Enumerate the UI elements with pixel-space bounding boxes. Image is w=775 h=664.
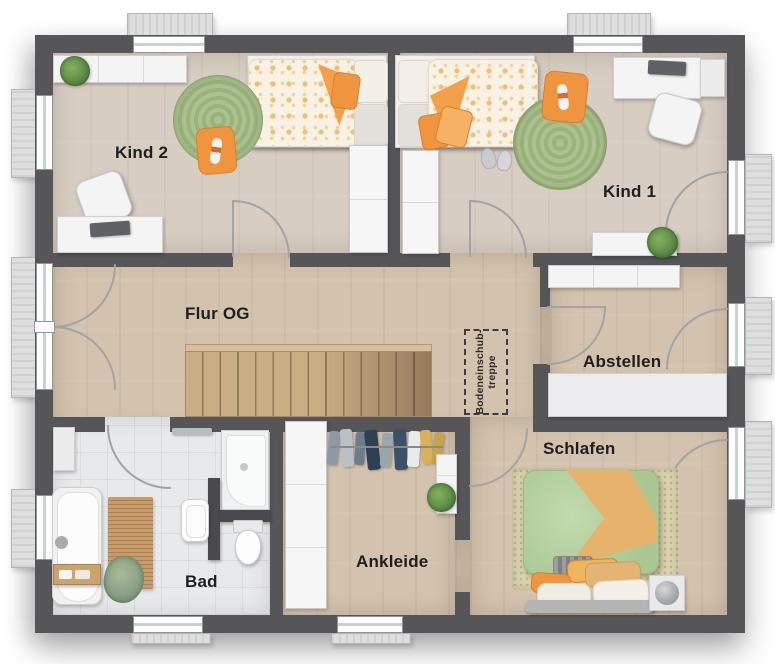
attic-stairs-line1: Bodeneinschub-	[474, 329, 486, 415]
kind2-plant	[60, 56, 90, 86]
window-abstellen-right	[728, 303, 745, 367]
towel-rail	[172, 428, 212, 435]
kind1-closet	[402, 150, 439, 254]
clothing-item	[364, 429, 381, 470]
ankleide-plant	[427, 483, 456, 512]
window-schlafen-right	[728, 427, 745, 500]
shower-tray	[226, 435, 266, 507]
sink	[181, 499, 209, 542]
toilet-bowl	[235, 530, 261, 565]
window-kind2-left	[36, 95, 53, 170]
kind1-monitor	[648, 60, 687, 76]
wall-ankleide-schlafen-bottom	[455, 592, 470, 615]
window-flur-mullion	[34, 321, 55, 333]
window-sill	[745, 421, 772, 508]
clothing-item	[393, 429, 408, 471]
kind2-bed	[247, 55, 387, 148]
towel-roll	[59, 570, 72, 579]
window-ankleide-bottom	[337, 616, 403, 633]
tub-faucet	[55, 536, 68, 549]
bath-caddy	[53, 564, 101, 585]
window-sill	[745, 154, 772, 243]
room-label-kind2: Kind 2	[115, 143, 168, 163]
headboard	[525, 600, 655, 613]
window-kind2-top	[133, 36, 205, 53]
room-label-kind1: Kind 1	[603, 182, 656, 202]
orange-pillow	[330, 71, 362, 110]
window-bad-bottom	[133, 616, 203, 633]
kind2-monitor	[90, 221, 131, 238]
towel-roll	[75, 570, 90, 579]
kind1-desk-cabinet	[700, 59, 725, 97]
kind1-plant	[647, 227, 678, 258]
window-bad-left	[36, 495, 53, 560]
room-label-flur-og: Flur OG	[185, 304, 250, 324]
attic-stairs-annotation: Bodeneinschub- treppe	[474, 329, 498, 415]
floor-plan: Bodeneinschub- treppe	[0, 0, 775, 664]
abstellen-sideboard	[548, 265, 680, 288]
window-sill	[11, 489, 38, 568]
window-sill	[745, 297, 772, 375]
ankleide-wardrobe	[285, 421, 327, 609]
shower	[221, 430, 269, 510]
wall-ankleide-schlafen-top	[455, 417, 470, 540]
clothes-rail	[330, 446, 443, 448]
clothing-item	[380, 433, 394, 468]
wall-bad-ankleide	[270, 417, 283, 615]
kind2-closet	[349, 145, 388, 253]
bath-partition-wall	[208, 478, 220, 560]
clothes-rail-items	[328, 427, 446, 473]
window-kind1-top	[573, 36, 643, 53]
wall-abstellen-schlafen	[533, 417, 727, 432]
room-label-bad: Bad	[185, 572, 218, 592]
wall-kind2-flur	[53, 253, 233, 267]
schlafen-bed	[523, 470, 657, 614]
room-label-ankleide: Ankleide	[356, 552, 428, 572]
clothing-item	[340, 429, 355, 468]
basin	[186, 505, 206, 538]
shower-drain	[240, 463, 248, 471]
room-label-abstellen: Abstellen	[583, 352, 661, 372]
pillow	[354, 104, 388, 147]
attic-stairs-annotation-box: Bodeneinschub- treppe	[464, 329, 508, 415]
schlafen-stool	[649, 575, 685, 611]
pillow	[398, 60, 432, 103]
room-label-schlafen: Schlafen	[543, 439, 615, 459]
stool-cushion	[655, 581, 679, 605]
window-sill	[11, 89, 38, 178]
wall-kids-flur-mid	[290, 253, 450, 267]
window-kind1-right	[728, 160, 745, 235]
bad-cabinet	[53, 427, 75, 471]
window-sill	[131, 633, 211, 644]
abstellen-shelf	[548, 373, 727, 417]
passage-floor	[455, 540, 470, 592]
staircase	[185, 351, 432, 417]
window-sill	[331, 633, 411, 644]
clothing-item	[326, 431, 340, 466]
attic-stairs-line2: treppe	[486, 329, 498, 415]
doorway-floor	[540, 307, 550, 364]
bathtub	[52, 487, 102, 605]
